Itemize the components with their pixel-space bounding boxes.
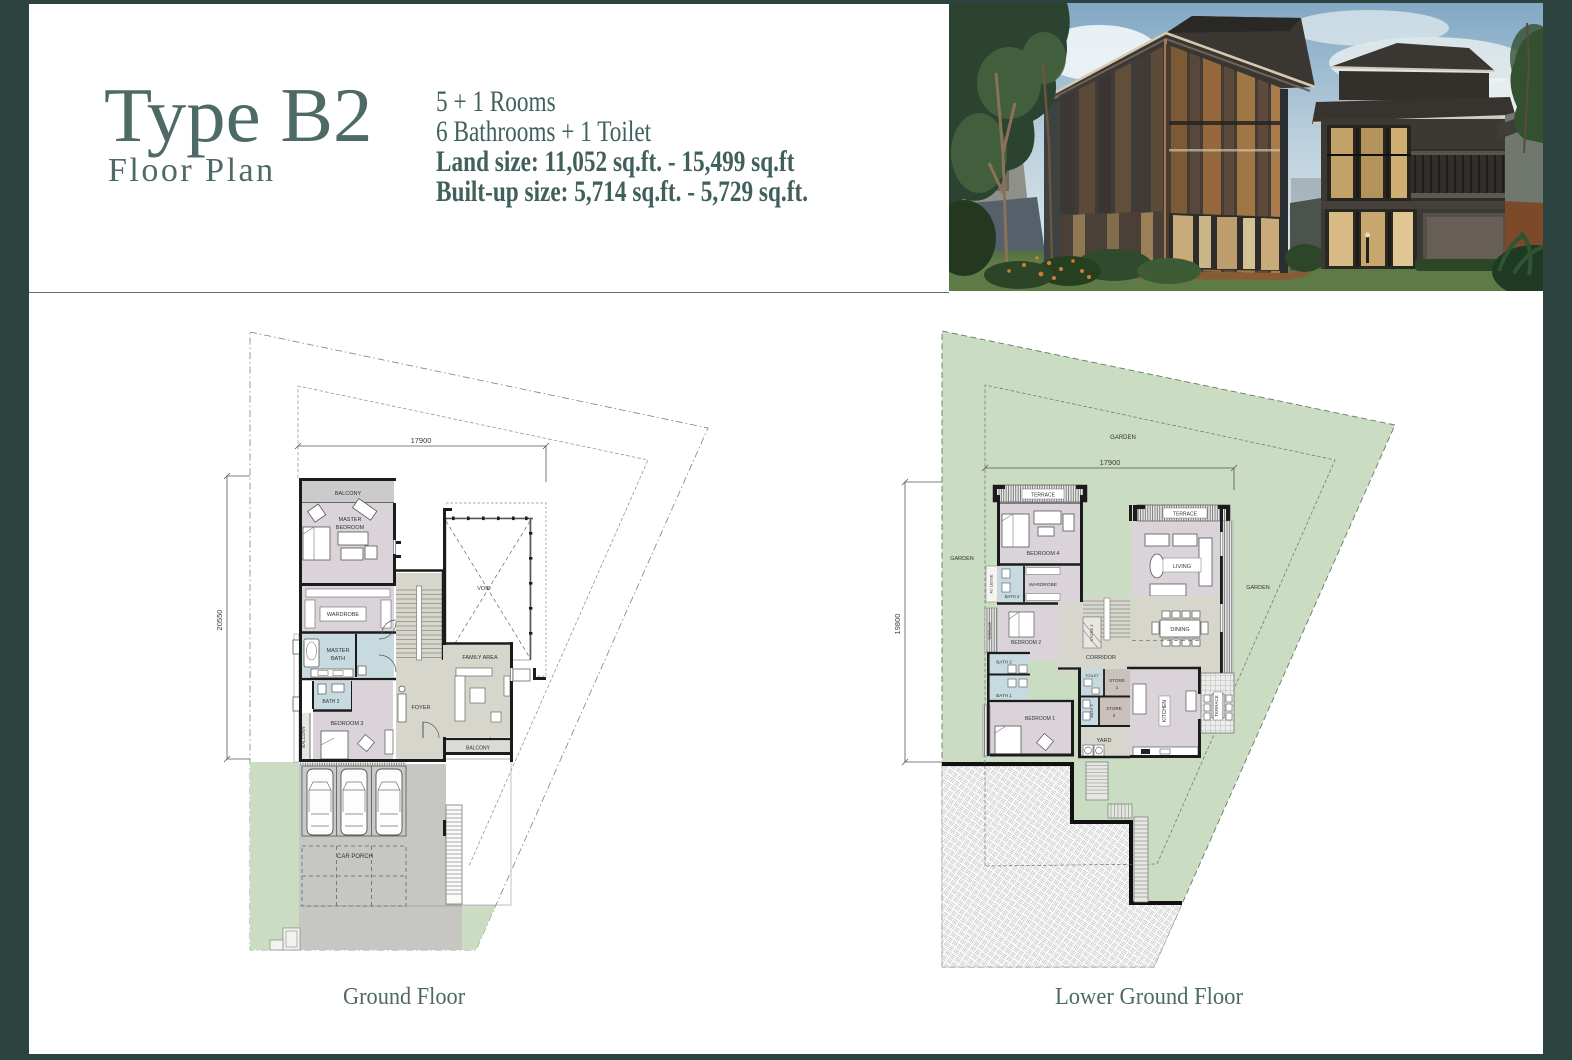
- svg-text:STORE 3: STORE 3: [1089, 624, 1094, 642]
- svg-text:BALCONY: BALCONY: [466, 746, 491, 752]
- svg-text:LIVING: LIVING: [1173, 564, 1191, 570]
- svg-text:17900: 17900: [1100, 458, 1121, 467]
- svg-text:BATH 4: BATH 4: [1005, 594, 1020, 599]
- svg-text:TOILET: TOILET: [1085, 673, 1099, 678]
- svg-text:BEDROOM 3: BEDROOM 3: [330, 721, 363, 727]
- svg-text:CAR PORCH: CAR PORCH: [337, 854, 373, 860]
- svg-text:TERRACE: TERRACE: [1214, 695, 1219, 717]
- svg-text:WARDROBE: WARDROBE: [1029, 582, 1057, 588]
- svg-text:TERRACE: TERRACE: [1031, 493, 1056, 499]
- svg-text:GARDEN: GARDEN: [1110, 435, 1136, 441]
- svg-text:WARDROBE: WARDROBE: [327, 612, 360, 618]
- svg-text:BEDROOM 1: BEDROOM 1: [1025, 716, 1055, 722]
- svg-text:TERRACE: TERRACE: [1173, 512, 1198, 518]
- svg-text:BATH 2: BATH 2: [996, 660, 1012, 665]
- svg-text:YARD: YARD: [1097, 738, 1112, 744]
- svg-text:MASTER: MASTER: [327, 648, 350, 654]
- svg-text:KITCHEN: KITCHEN: [1162, 700, 1168, 722]
- svg-text:BEDROOM 4: BEDROOM 4: [1026, 551, 1059, 557]
- svg-text:DINING: DINING: [1170, 627, 1189, 633]
- svg-text:CORRIDOR: CORRIDOR: [1086, 655, 1116, 661]
- svg-text:19800: 19800: [893, 614, 902, 635]
- svg-text:AC LEDGE: AC LEDGE: [990, 574, 994, 594]
- svg-text:20550: 20550: [215, 610, 224, 631]
- svg-text:FOYER: FOYER: [412, 705, 431, 711]
- svg-text:GARDEN: GARDEN: [1246, 585, 1270, 591]
- svg-text:VOID: VOID: [477, 586, 490, 592]
- svg-text:TERRACE: TERRACE: [988, 621, 992, 640]
- svg-text:BATH: BATH: [331, 656, 345, 662]
- svg-text:MASTER: MASTER: [339, 517, 362, 523]
- svg-text:STORE: STORE: [1106, 706, 1121, 711]
- svg-text:BEDROOM: BEDROOM: [336, 525, 365, 531]
- svg-text:GARDEN: GARDEN: [950, 556, 974, 562]
- svg-text:17900: 17900: [411, 436, 432, 445]
- svg-text:FAMILY AREA: FAMILY AREA: [462, 655, 498, 661]
- svg-text:BEDROOM 2: BEDROOM 2: [1011, 640, 1041, 646]
- svg-text:BALCONY: BALCONY: [335, 491, 362, 497]
- svg-text:BATH 2: BATH 2: [322, 699, 339, 705]
- svg-text:STORE: STORE: [1109, 678, 1124, 683]
- svg-text:BATH 3: BATH 3: [1090, 704, 1094, 717]
- svg-text:BATH 1: BATH 1: [996, 693, 1012, 698]
